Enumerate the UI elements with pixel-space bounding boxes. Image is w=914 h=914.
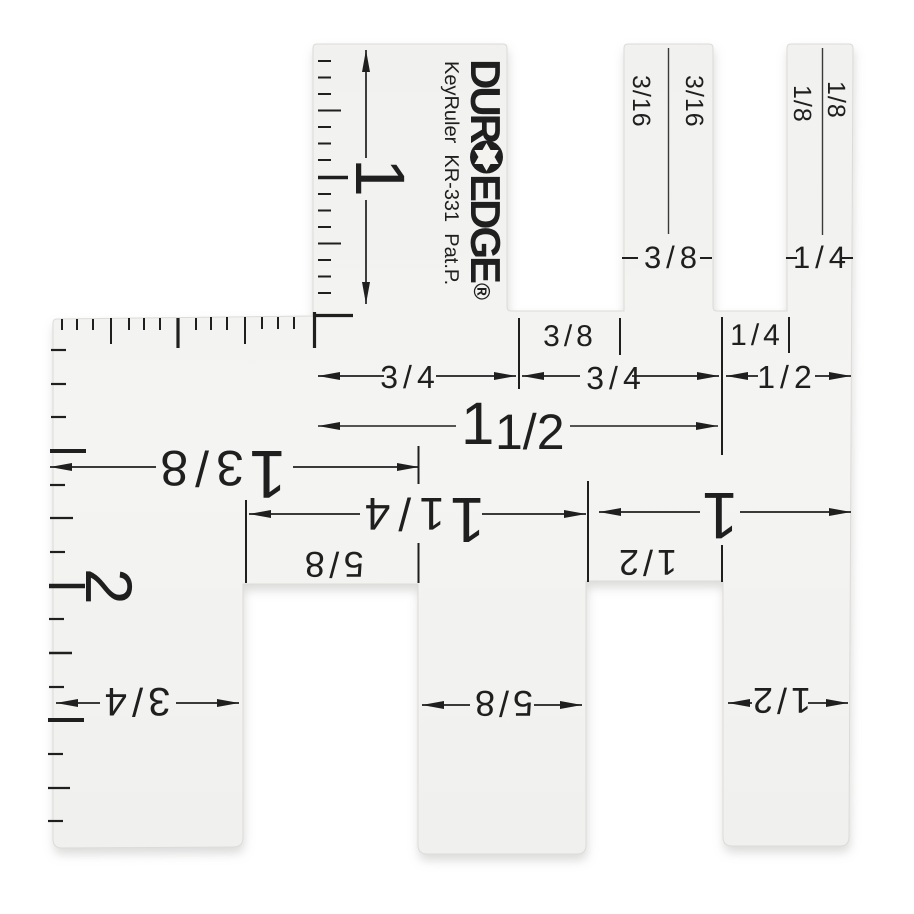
svg-text:3/16: 3/16 <box>627 75 655 128</box>
svg-text:5/8: 5/8 <box>300 544 364 585</box>
svg-text:1/2: 1/2 <box>749 680 811 721</box>
svg-text:3/8: 3/8 <box>644 240 702 275</box>
svg-text:1: 1 <box>702 479 739 553</box>
svg-text:1/4: 1/4 <box>730 319 784 352</box>
svg-text:3/4: 3/4 <box>100 679 171 723</box>
svg-text:KeyRuler KR-331 Pat.P.: KeyRuler KR-331 Pat.P. <box>440 61 462 285</box>
svg-text:1/8: 1/8 <box>788 85 816 123</box>
svg-text:1: 1 <box>461 390 494 457</box>
svg-text:1/2: 1/2 <box>495 404 565 460</box>
svg-text:3/4: 3/4 <box>586 360 645 396</box>
svg-text:3/16: 3/16 <box>680 75 708 128</box>
svg-text:1: 1 <box>341 158 419 197</box>
svg-text:1/2: 1/2 <box>615 542 677 583</box>
svg-text:1/8: 1/8 <box>822 81 850 119</box>
svg-text:3/4: 3/4 <box>380 359 439 395</box>
svg-text:5/8: 5/8 <box>471 683 533 724</box>
svg-text:®: ® <box>469 283 495 300</box>
svg-text:EDGE: EDGE <box>462 174 509 283</box>
svg-text:1/2: 1/2 <box>757 359 816 395</box>
svg-text:3/8: 3/8 <box>543 320 597 353</box>
svg-text:2: 2 <box>72 568 146 605</box>
svg-text:DUR: DUR <box>462 59 509 144</box>
